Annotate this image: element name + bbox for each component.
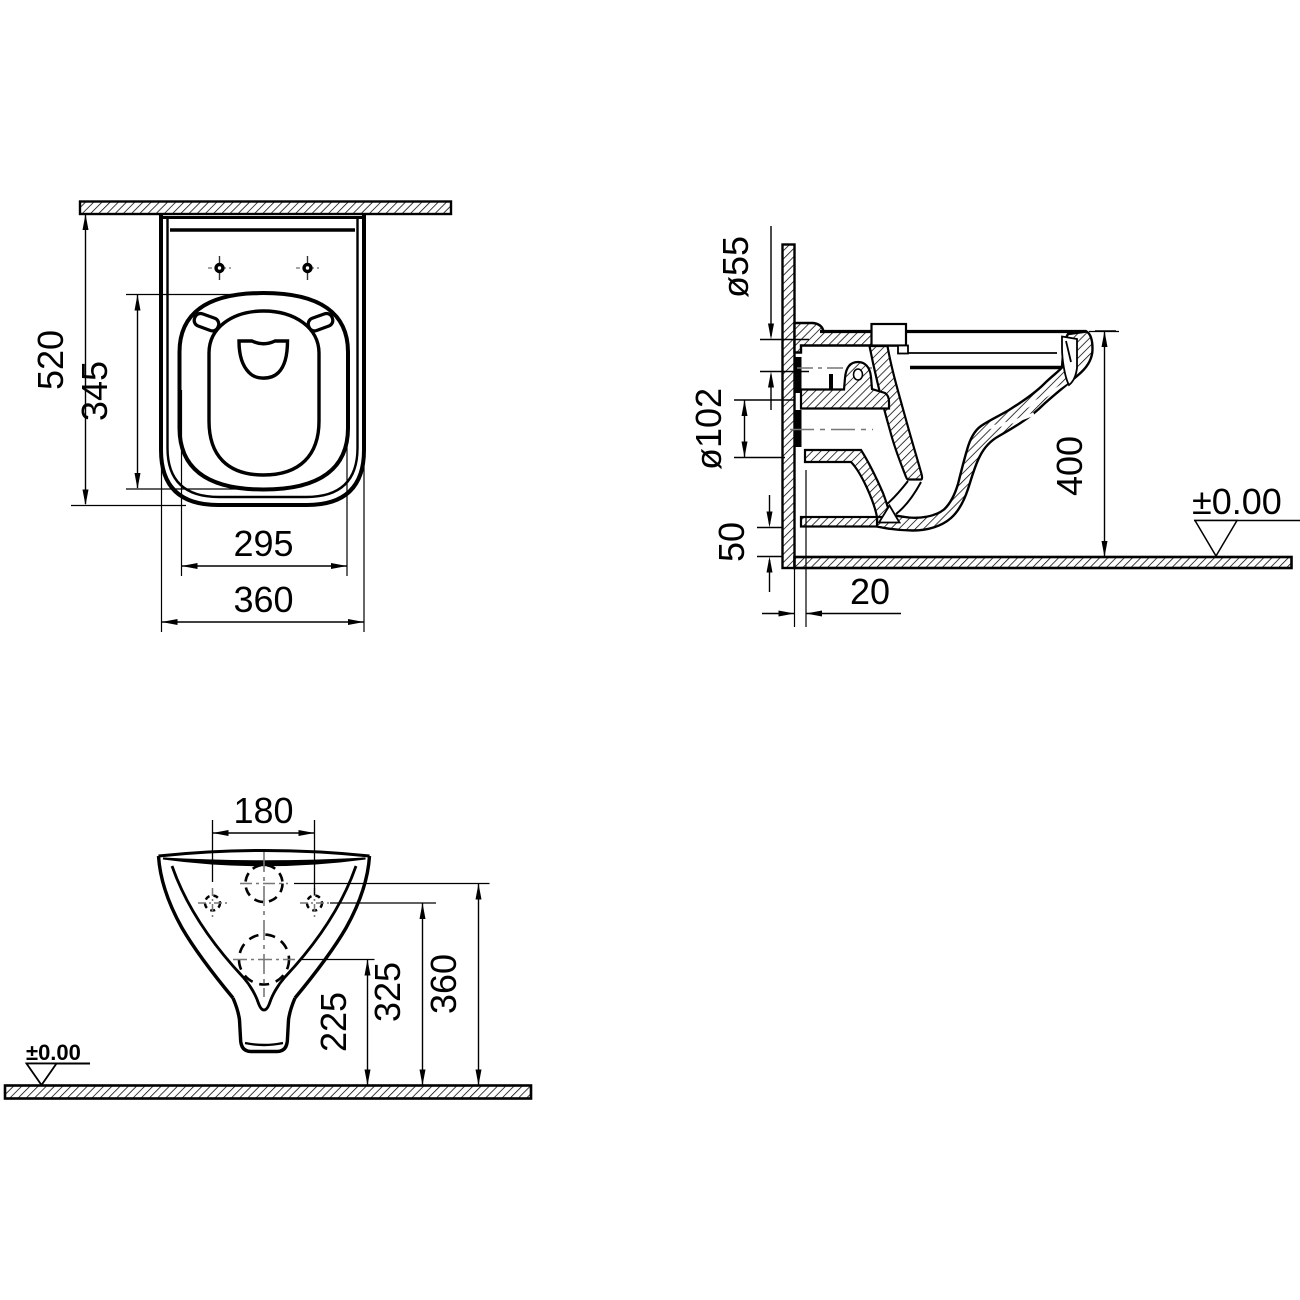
svg-text:180: 180 [233,790,293,831]
svg-text:325: 325 [367,962,408,1022]
svg-text:ø102: ø102 [688,388,729,470]
svg-text:295: 295 [233,523,293,564]
svg-text:360: 360 [423,954,464,1014]
svg-text:345: 345 [74,361,115,421]
svg-text:20: 20 [850,571,890,612]
svg-text:±0.00: ±0.00 [1192,481,1282,522]
svg-text:±0.00: ±0.00 [26,1040,81,1065]
svg-text:400: 400 [1049,436,1090,496]
svg-text:ø55: ø55 [715,236,756,298]
svg-text:225: 225 [313,992,354,1052]
svg-text:520: 520 [30,330,71,390]
svg-text:50: 50 [711,522,752,562]
svg-text:360: 360 [233,579,293,620]
